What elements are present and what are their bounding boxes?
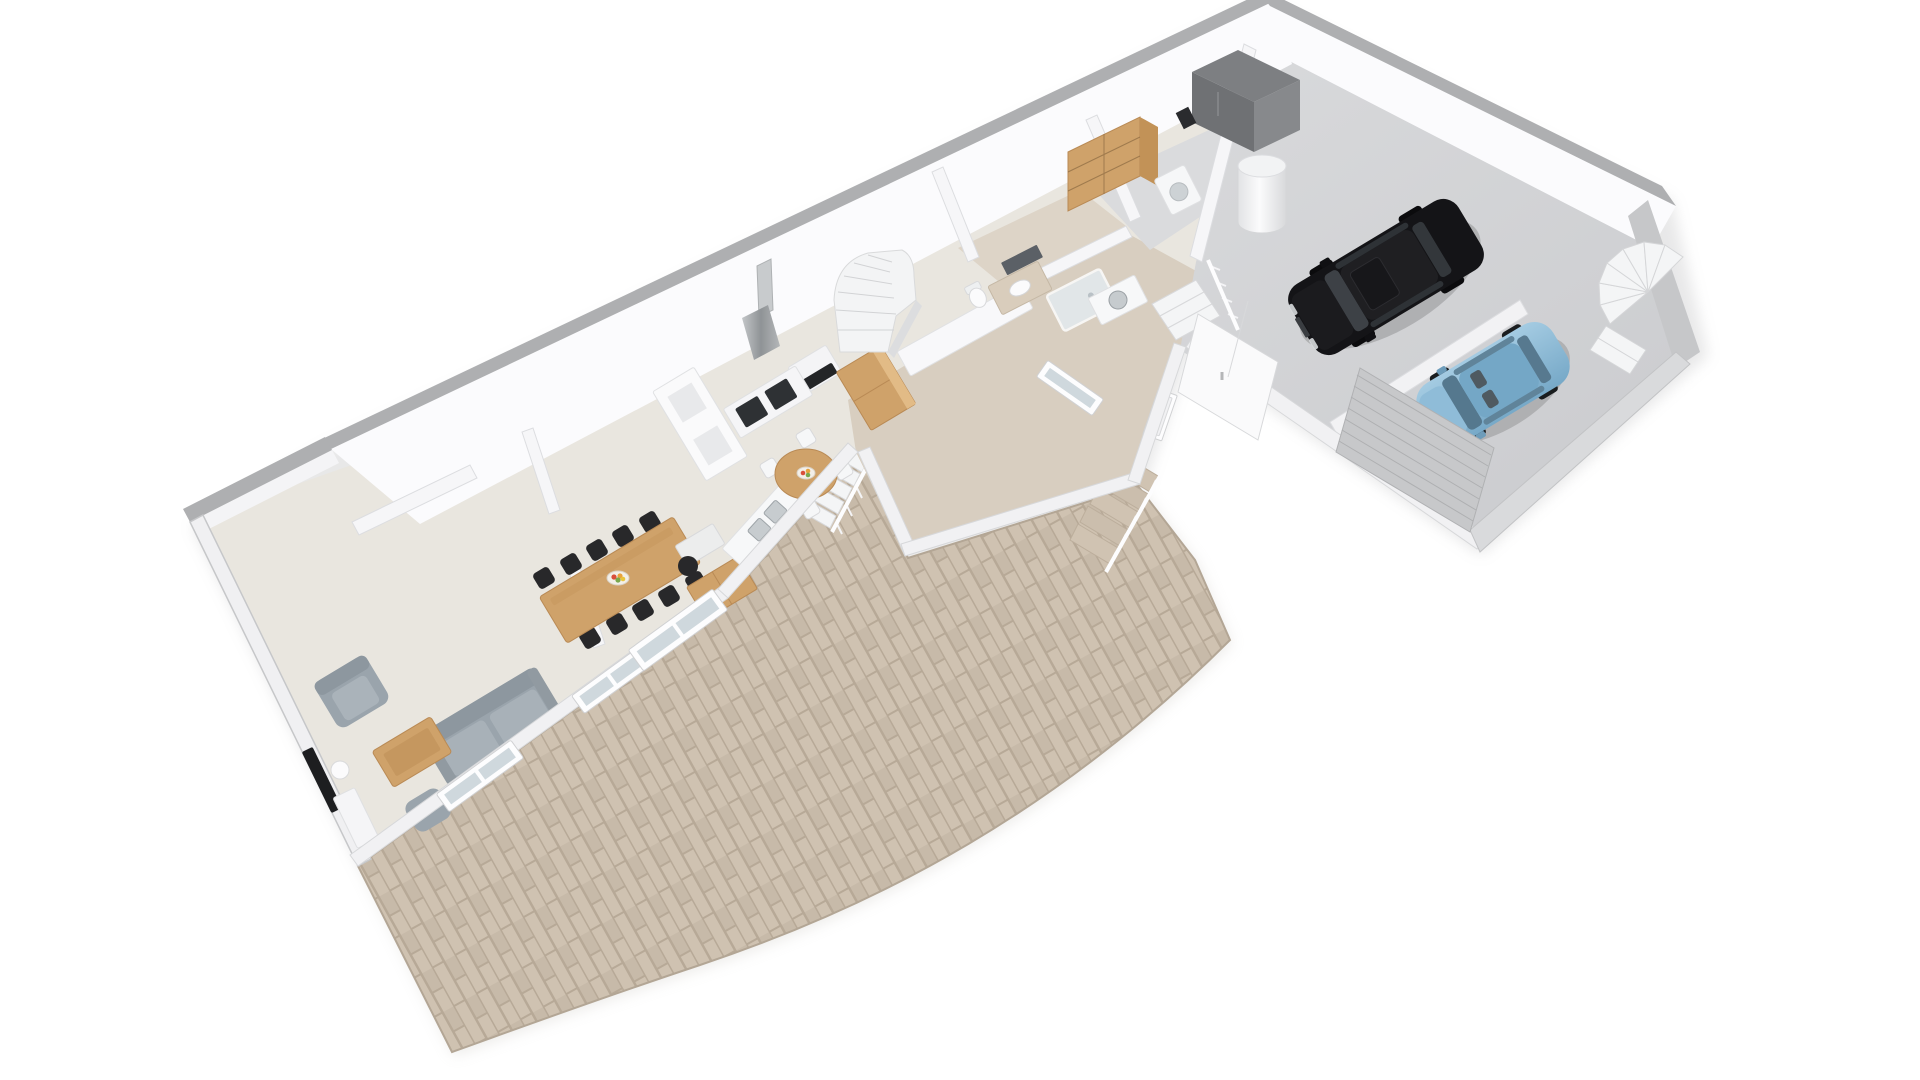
fruit <box>615 577 620 582</box>
heater-top <box>1238 155 1286 177</box>
fruit <box>621 577 626 582</box>
fruit <box>801 471 806 476</box>
bookshelf-side <box>1140 117 1158 186</box>
floor-lamp <box>331 761 349 779</box>
fruit-bowl <box>797 467 815 479</box>
bowl <box>797 467 815 479</box>
floor-plan-canvas <box>0 0 1920 1080</box>
fruit-bowl <box>607 571 629 585</box>
fruit <box>806 473 811 478</box>
fruit <box>806 469 811 474</box>
office-chair <box>678 556 698 576</box>
water-heater <box>1238 155 1286 233</box>
